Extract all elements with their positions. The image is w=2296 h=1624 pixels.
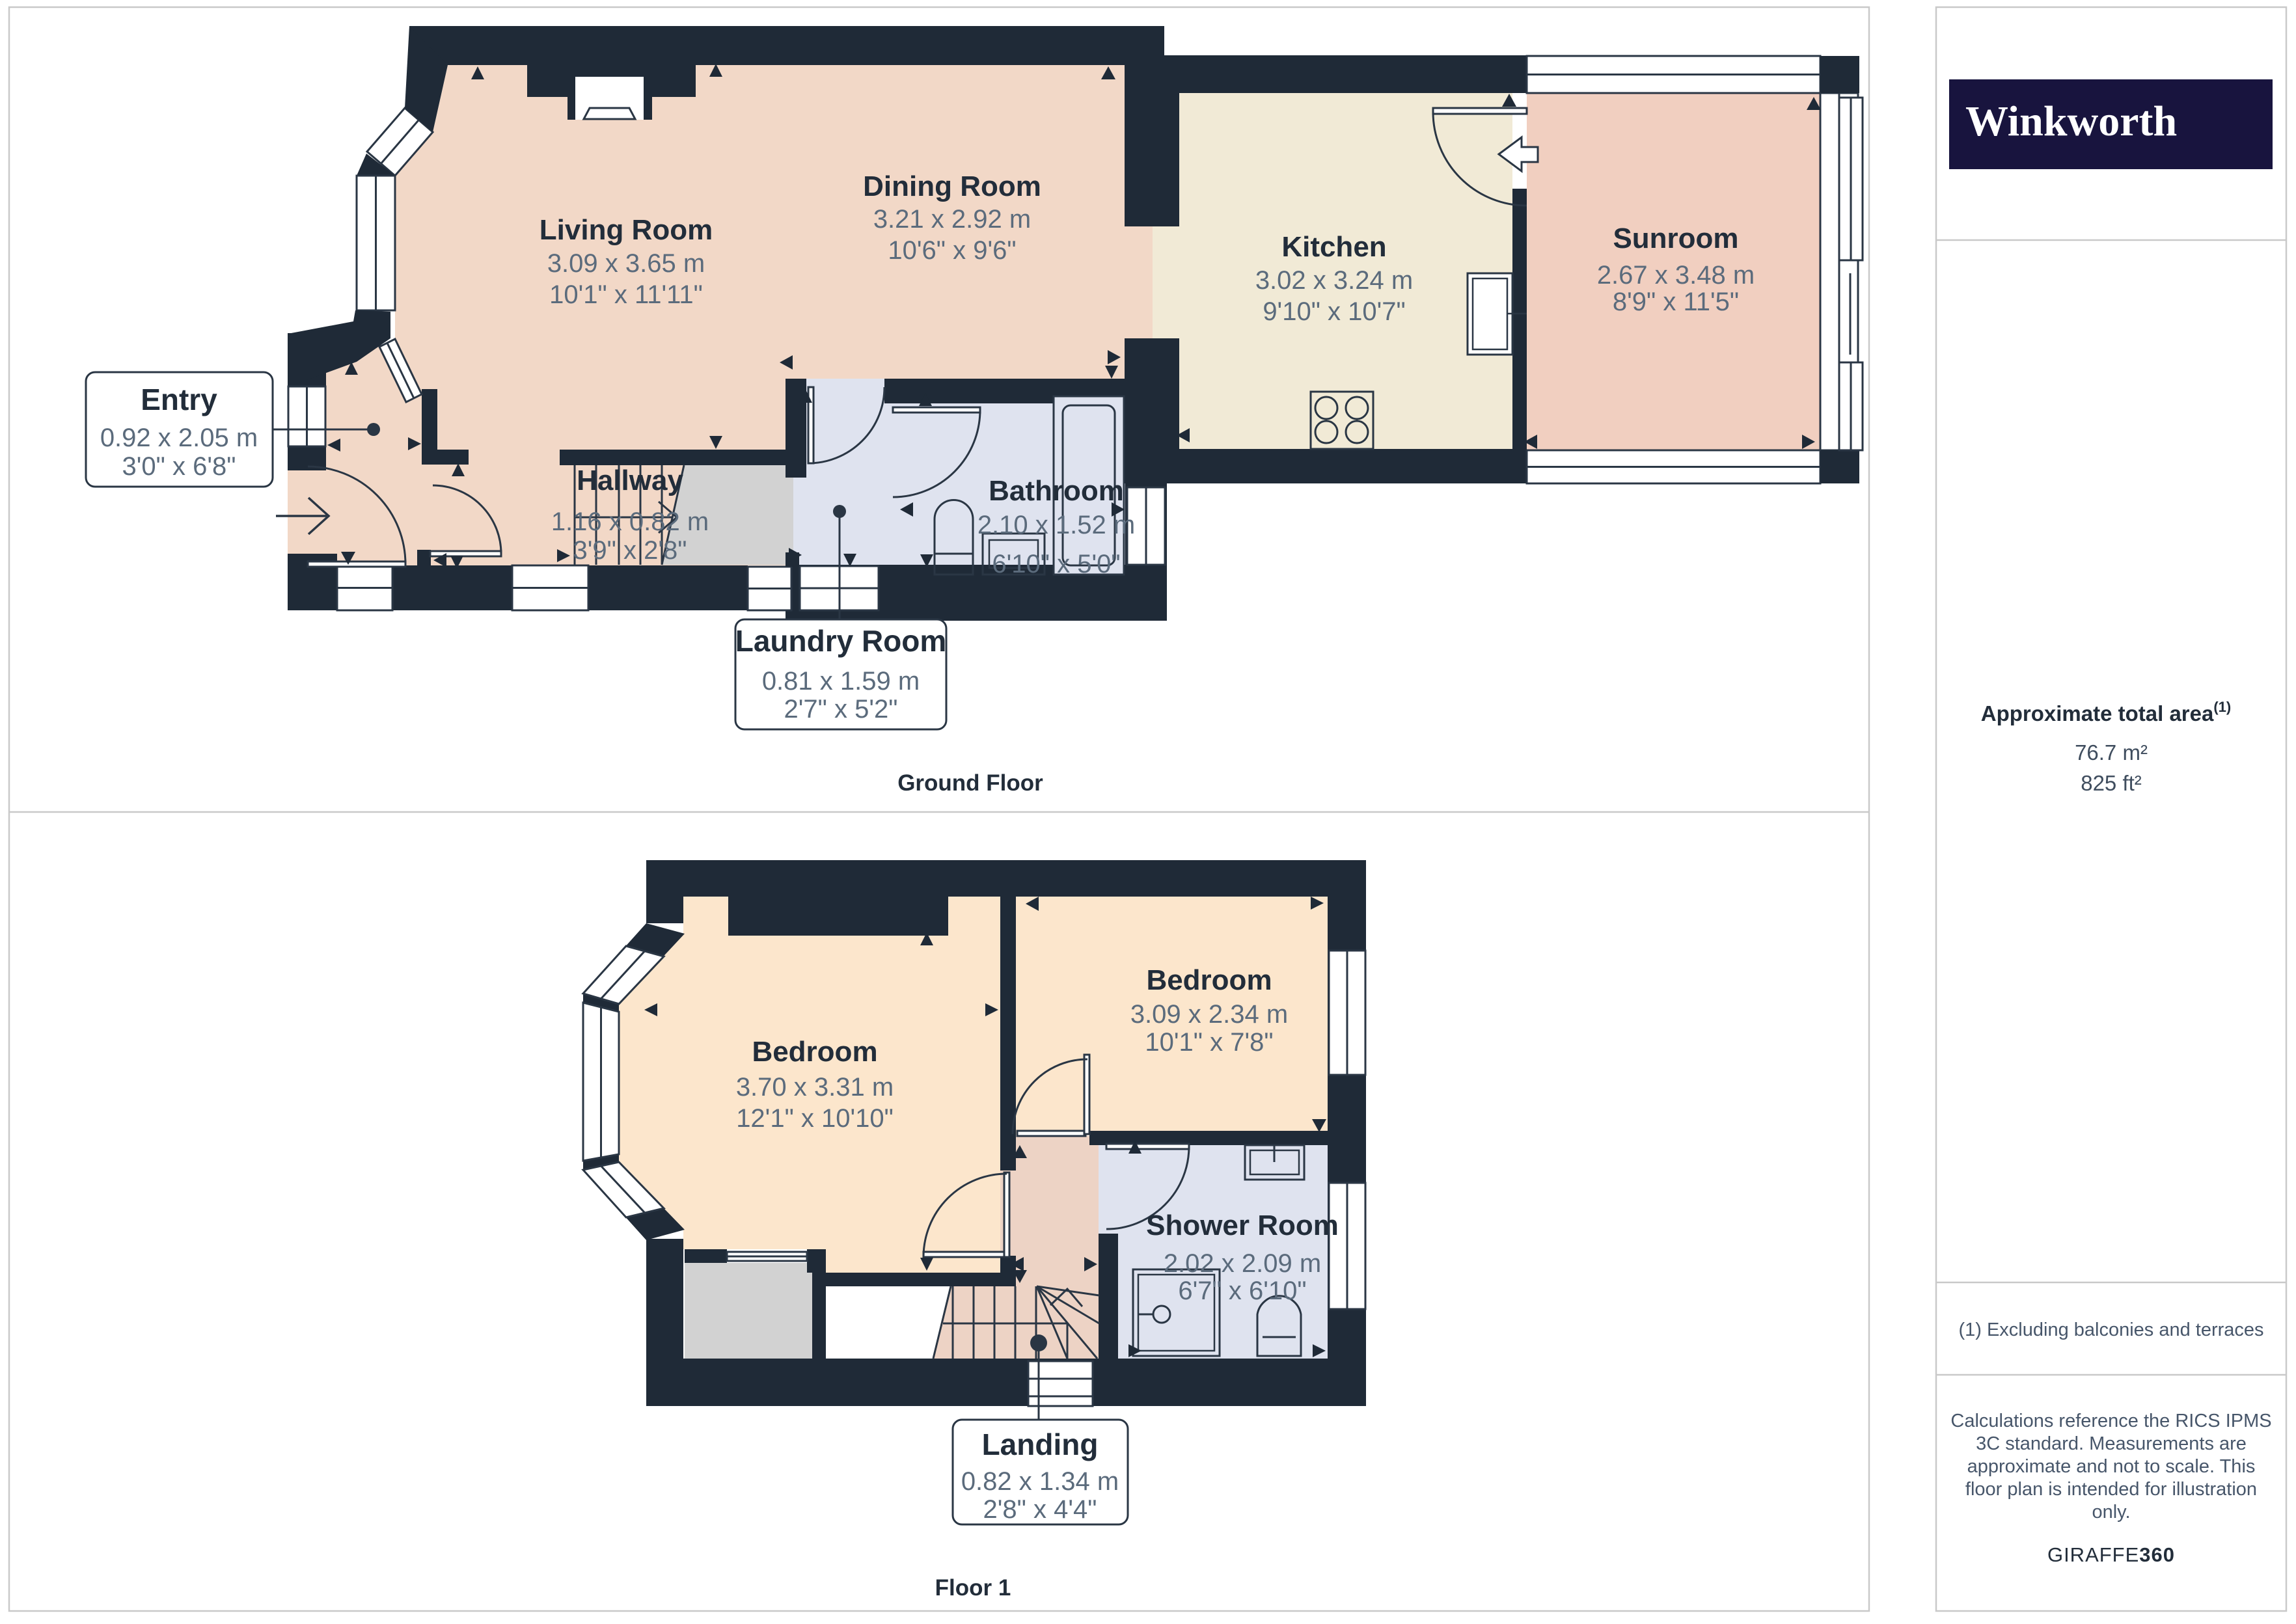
- svg-text:floor plan is intended for ill: floor plan is intended for illustration: [1965, 1479, 2257, 1500]
- svg-text:10'6" x 9'6": 10'6" x 9'6": [888, 236, 1016, 265]
- svg-text:825 ft²: 825 ft²: [2081, 771, 2142, 795]
- svg-text:10'1" x 11'11": 10'1" x 11'11": [549, 280, 703, 309]
- svg-text:2'7" x 5'2": 2'7" x 5'2": [784, 695, 898, 724]
- svg-text:Calculations reference the RIC: Calculations reference the RICS IPMS: [1950, 1411, 2271, 1431]
- svg-text:(1) Excluding balconies and te: (1) Excluding balconies and terraces: [1958, 1319, 2263, 1340]
- svg-text:Floor 1: Floor 1: [935, 1575, 1011, 1601]
- svg-text:6'10" x 5'0": 6'10" x 5'0": [992, 550, 1120, 578]
- svg-text:10'1" x 7'8": 10'1" x 7'8": [1145, 1028, 1273, 1057]
- svg-text:approximate and not to scale.: approximate and not to scale. This: [1967, 1456, 2256, 1477]
- svg-text:Sunroom: Sunroom: [1613, 223, 1738, 254]
- svg-text:3'0" x 6'8": 3'0" x 6'8": [122, 452, 236, 481]
- svg-text:GIRAFFE360: GIRAFFE360: [2047, 1543, 2175, 1566]
- svg-text:Ground Floor: Ground Floor: [897, 770, 1043, 796]
- svg-text:Entry: Entry: [141, 383, 217, 416]
- svg-text:0.82 x 1.34 m: 0.82 x 1.34 m: [961, 1467, 1119, 1496]
- svg-text:3.02 x 3.24 m: 3.02 x 3.24 m: [1255, 266, 1413, 295]
- svg-text:2'8" x 4'4": 2'8" x 4'4": [983, 1495, 1097, 1524]
- svg-text:Winkworth: Winkworth: [1965, 98, 2177, 145]
- svg-text:3.21 x 2.92 m: 3.21 x 2.92 m: [873, 205, 1031, 234]
- svg-text:Living Room: Living Room: [540, 214, 713, 246]
- svg-text:0.81 x 1.59 m: 0.81 x 1.59 m: [762, 667, 920, 696]
- svg-text:2.02 x 2.09 m: 2.02 x 2.09 m: [1164, 1249, 1321, 1278]
- svg-text:Approximate total area(1): Approximate total area(1): [1981, 699, 2232, 725]
- svg-text:8'9" x 11'5": 8'9" x 11'5": [1613, 288, 1739, 316]
- svg-text:76.7 m²: 76.7 m²: [2075, 740, 2148, 765]
- svg-text:1.16 x 0.82 m: 1.16 x 0.82 m: [551, 507, 709, 536]
- svg-text:Kitchen: Kitchen: [1281, 231, 1386, 263]
- svg-text:3.09 x 3.65 m: 3.09 x 3.65 m: [547, 249, 705, 278]
- svg-text:6'7" x 6'10": 6'7" x 6'10": [1178, 1277, 1306, 1305]
- svg-text:3C standard. Measurements are: 3C standard. Measurements are: [1976, 1433, 2247, 1454]
- svg-text:3.70 x 3.31 m: 3.70 x 3.31 m: [736, 1073, 894, 1102]
- svg-text:Landing: Landing: [982, 1428, 1099, 1461]
- svg-text:Bedroom: Bedroom: [752, 1036, 877, 1068]
- svg-text:3'9" x 2'8": 3'9" x 2'8": [573, 536, 687, 565]
- svg-text:9'10" x 10'7": 9'10" x 10'7": [1263, 297, 1405, 326]
- svg-text:Laundry Room: Laundry Room: [735, 624, 947, 658]
- svg-text:Dining Room: Dining Room: [863, 170, 1041, 202]
- svg-text:Bathroom: Bathroom: [989, 475, 1124, 507]
- svg-text:3.09 x 2.34 m: 3.09 x 2.34 m: [1130, 1000, 1288, 1029]
- svg-text:Bedroom: Bedroom: [1146, 964, 1272, 996]
- svg-text:0.92 x 2.05 m: 0.92 x 2.05 m: [100, 424, 258, 452]
- svg-text:2.10 x 1.52 m: 2.10 x 1.52 m: [977, 511, 1135, 539]
- svg-text:only.: only.: [2092, 1502, 2130, 1522]
- svg-text:Shower Room: Shower Room: [1146, 1210, 1339, 1241]
- svg-text:12'1" x 10'10": 12'1" x 10'10": [736, 1104, 894, 1133]
- svg-text:Hallway: Hallway: [577, 465, 683, 496]
- svg-text:2.67 x 3.48 m: 2.67 x 3.48 m: [1597, 261, 1755, 290]
